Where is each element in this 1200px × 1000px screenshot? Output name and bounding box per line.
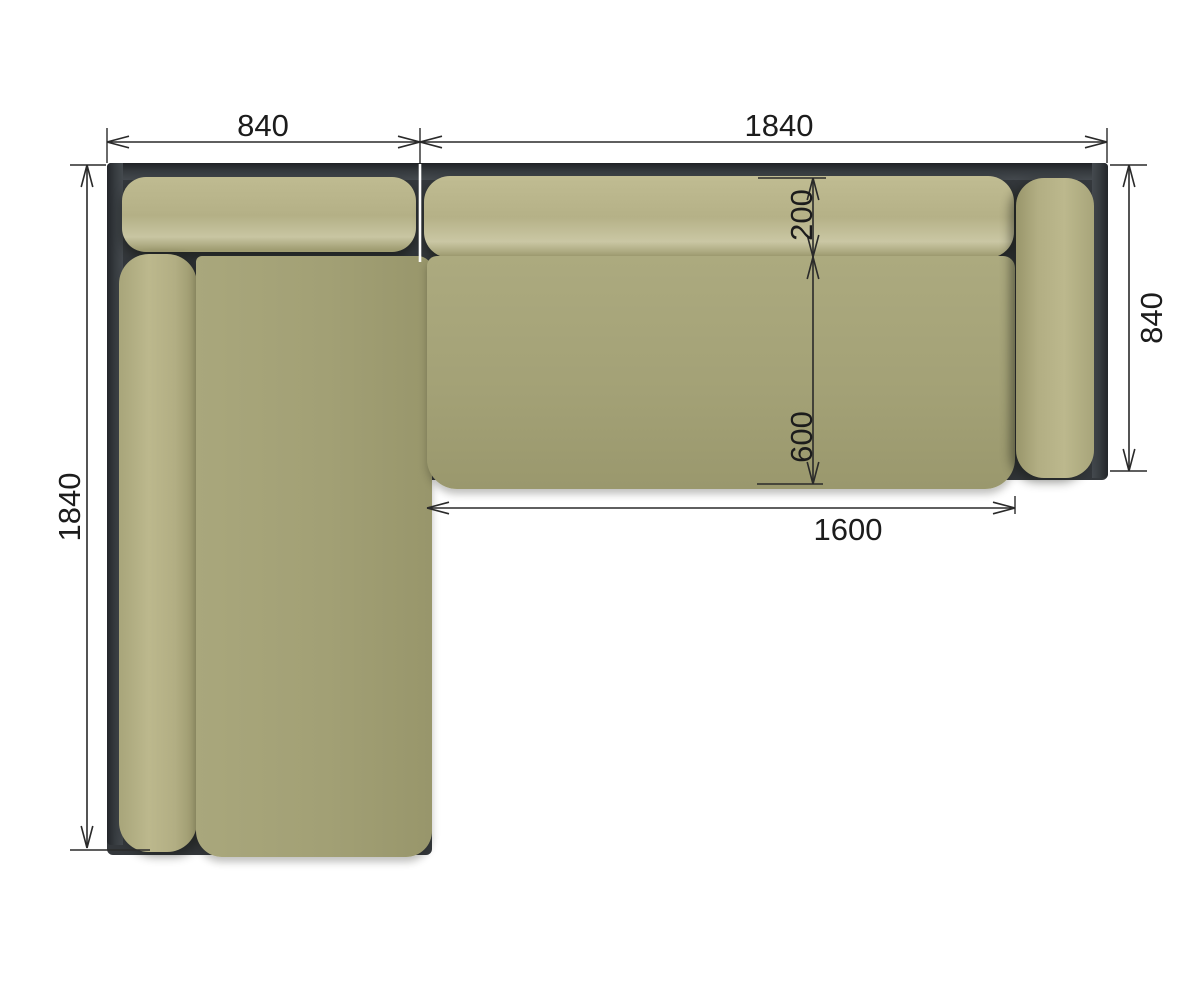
dim-label-seat-length: 1600 <box>814 512 883 547</box>
dim-label-sofa-width: 1840 <box>745 108 814 143</box>
dimension-right: 840 <box>1110 165 1169 471</box>
chaise-left-arm-cushion <box>119 254 197 852</box>
dimension-bottom: 1600 <box>427 496 1015 547</box>
chaise-back-cushion <box>122 177 416 252</box>
dimension-drawing-canvas: 840 1840 1840 840 <box>0 0 1200 1000</box>
main-back-cushion <box>424 176 1014 258</box>
dim-label-left-depth: 1840 <box>52 473 87 542</box>
main-seat-cushion <box>427 256 1015 489</box>
dim-label-chaise-width: 840 <box>237 108 289 143</box>
chaise-seat-cushion <box>196 256 432 857</box>
dim-label-right-depth: 840 <box>1134 292 1169 344</box>
right-arm-cushion <box>1016 178 1094 478</box>
sofa-frame-right-rail <box>1092 163 1108 478</box>
